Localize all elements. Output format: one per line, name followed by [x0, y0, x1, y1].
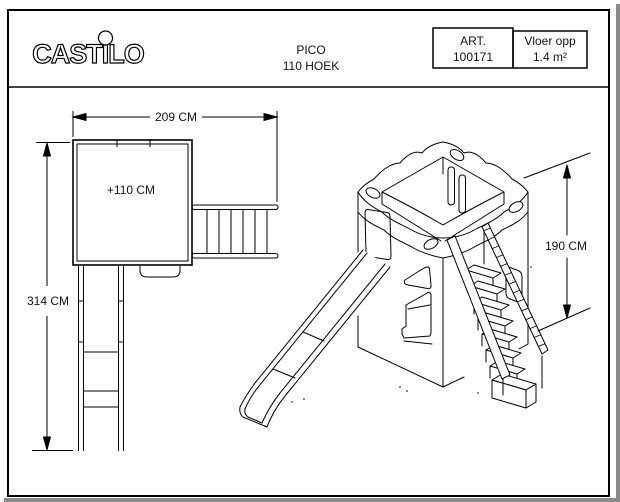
plan-stairs [192, 205, 278, 258]
arrow-up-icon [564, 165, 571, 178]
plan-slide [79, 265, 181, 451]
floor-area-value: 1.4 m² [533, 50, 567, 64]
plan-platform: +110 CM [73, 139, 192, 265]
plan-height-dimension: 314 CM [27, 143, 73, 451]
product-name: PICO [296, 43, 325, 57]
floor-area-label: Vloer opp [524, 34, 576, 48]
corner-hole-icon [364, 186, 381, 201]
plan-width-dimension: 209 CM [73, 110, 277, 202]
brand-logo-text: CASTILO [32, 39, 144, 69]
width-dim-label: 209 CM [155, 110, 197, 124]
plan-view: 209 CM +110 CM 314 CM [27, 110, 278, 451]
art-number: 100171 [453, 50, 493, 64]
arrow-down-icon [44, 437, 51, 450]
arrow-left-icon [73, 114, 86, 121]
corner-hole-icon [448, 147, 465, 163]
plan-slide-hood [140, 266, 180, 277]
platform-height-label: +110 CM [107, 183, 155, 197]
arrow-right-icon [264, 114, 277, 121]
arrow-down-icon [564, 305, 571, 318]
header: PICO 110 HOEK ART. 100171 Vloer opp 1.4 … [283, 34, 576, 73]
rim-slot [448, 167, 455, 205]
tower-height-label: 190 CM [545, 239, 587, 253]
brand-logo: CASTILO [32, 31, 144, 69]
logo-i-dot-icon [99, 31, 113, 45]
iso-height-dimension: 190 CM [524, 153, 590, 331]
product-variant: 110 HOEK [283, 59, 339, 73]
arrow-up-icon [44, 143, 51, 156]
datasheet-page: CASTILO PICO 110 HOEK ART. 100171 Vloer … [0, 0, 620, 502]
rim-slot [459, 175, 466, 213]
art-label: ART. [460, 34, 486, 48]
height-dim-label: 314 CM [27, 294, 69, 308]
isometric-view: 190 CM [240, 142, 590, 427]
corner-hole-icon [507, 199, 524, 214]
